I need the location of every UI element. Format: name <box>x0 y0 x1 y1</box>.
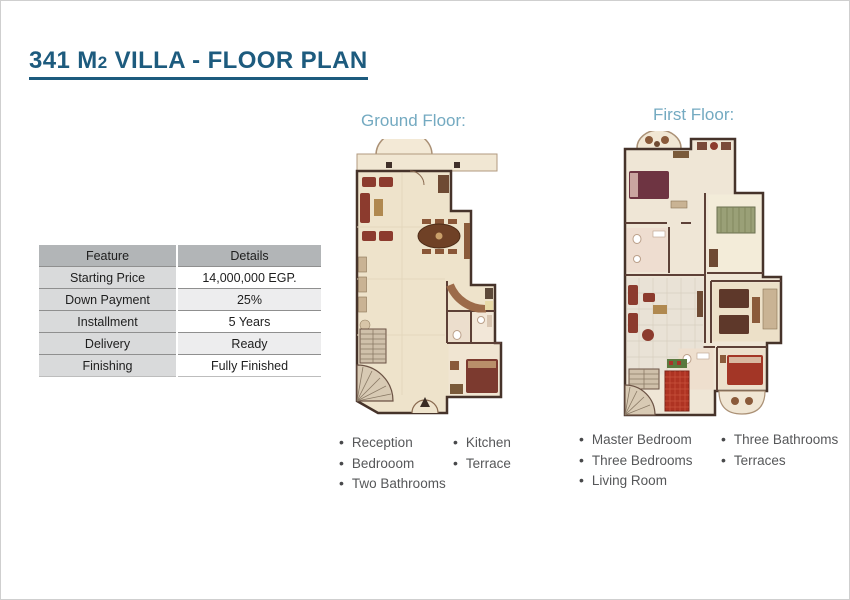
list-item: •Living Room <box>579 473 692 494</box>
ground-floor-plan-image <box>350 139 514 425</box>
ground-floor-features-col2: •Kitchen •Terrace <box>453 435 511 476</box>
table-row: Delivery Ready <box>39 333 321 355</box>
upper-bathroom <box>627 228 668 272</box>
bullet-icon: • <box>453 435 458 449</box>
list-item: •Terrace <box>453 456 511 477</box>
feature-label: Three Bathrooms <box>734 432 838 447</box>
porch-arch <box>376 139 432 155</box>
table-row: Down Payment 25% <box>39 289 321 311</box>
bullet-icon: • <box>579 473 584 487</box>
list-item: •Reception <box>339 435 446 456</box>
page-title: 341 M2 VILLA - FLOOR PLAN <box>29 47 368 80</box>
ground-floor-features-col1: •Reception •Bedrooom •Two Bathrooms <box>339 435 446 497</box>
details-cell: 5 Years <box>177 311 321 333</box>
details-cell: 14,000,000 EGP. <box>177 267 321 289</box>
bullet-icon: • <box>579 453 584 467</box>
header-details: Details <box>177 245 321 267</box>
header-feature: Feature <box>39 245 177 267</box>
bedroom-four <box>719 349 766 390</box>
upper-terrace-furniture <box>697 142 731 150</box>
brochure-page: 341 M2 VILLA - FLOOR PLAN Feature Detail… <box>0 0 850 600</box>
bullet-icon: • <box>339 456 344 470</box>
feature-label: Master Bedroom <box>592 432 692 447</box>
first-floor-label: First Floor: <box>653 105 734 125</box>
bullet-icon: • <box>721 453 726 467</box>
feature-cell: Down Payment <box>39 289 177 311</box>
feature-label: Bedrooom <box>352 456 414 471</box>
feature-label: Living Room <box>592 473 667 488</box>
bedroom-area <box>449 345 500 396</box>
feature-cell: Installment <box>39 311 177 333</box>
bullet-icon: • <box>579 432 584 446</box>
bullet-icon: • <box>339 435 344 449</box>
feature-label: Terraces <box>734 453 786 468</box>
table-row: Finishing Fully Finished <box>39 355 321 377</box>
list-item: •Two Bathrooms <box>339 476 446 497</box>
title-suffix: VILLA - FLOOR PLAN <box>108 47 368 74</box>
ground-floor-label: Ground Floor: <box>361 111 466 131</box>
spec-table: Feature Details Starting Price 14,000,00… <box>39 245 321 377</box>
first-floor-features-col1: •Master Bedroom •Three Bedrooms •Living … <box>579 432 692 494</box>
bedroom-two <box>709 195 762 272</box>
list-item: •Three Bathrooms <box>721 432 838 453</box>
terrace-tiles <box>665 359 689 411</box>
feature-label: Terrace <box>466 456 511 471</box>
table-header-row: Feature Details <box>39 245 321 267</box>
bedroom-three <box>713 283 780 342</box>
list-item: •Kitchen <box>453 435 511 456</box>
feature-label: Two Bathrooms <box>352 476 446 491</box>
details-cell: 25% <box>177 289 321 311</box>
feature-label: Three Bedrooms <box>592 453 693 468</box>
bullet-icon: • <box>721 432 726 446</box>
title-prefix: 341 M <box>29 47 98 74</box>
feature-cell: Starting Price <box>39 267 177 289</box>
lower-balcony <box>719 391 765 414</box>
list-item: •Bedrooom <box>339 456 446 477</box>
list-item: •Terraces <box>721 453 838 474</box>
feature-cell: Finishing <box>39 355 177 377</box>
bullet-icon: • <box>339 476 344 490</box>
table-row: Installment 5 Years <box>39 311 321 333</box>
feature-label: Reception <box>352 435 413 450</box>
entry-terrace <box>357 154 497 171</box>
first-floor-plan-image <box>617 131 785 423</box>
details-cell: Fully Finished <box>177 355 321 377</box>
table-row: Starting Price 14,000,000 EGP. <box>39 267 321 289</box>
details-cell: Ready <box>177 333 321 355</box>
list-item: •Master Bedroom <box>579 432 692 453</box>
feature-cell: Delivery <box>39 333 177 355</box>
bullet-icon: • <box>453 456 458 470</box>
title-area-superscript: 2 <box>98 53 108 72</box>
list-item: •Three Bedrooms <box>579 453 692 474</box>
feature-label: Kitchen <box>466 435 511 450</box>
first-floor-features-col2: •Three Bathrooms •Terraces <box>721 432 838 473</box>
